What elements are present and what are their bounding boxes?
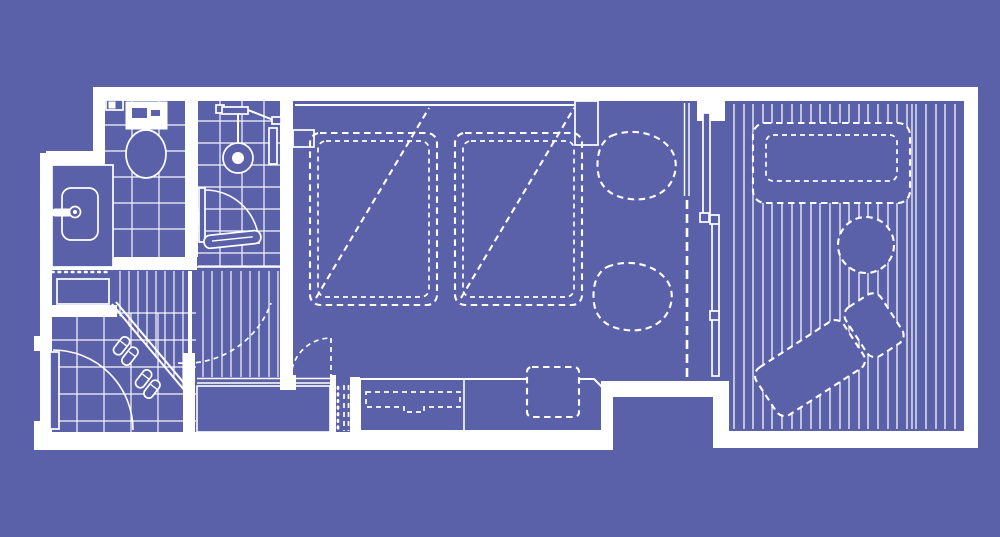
outdoor-bench <box>753 123 910 203</box>
sliding-panel-2 <box>712 220 719 376</box>
panel-handle <box>700 213 709 222</box>
stool-dashed <box>527 367 579 417</box>
side-table-dashed <box>838 217 894 273</box>
door-leaf <box>50 352 59 429</box>
wall-panel <box>269 128 277 164</box>
vanity <box>52 165 113 304</box>
panel-handle <box>710 215 719 224</box>
panel-handle <box>710 311 719 320</box>
bath-cabinet <box>57 279 109 304</box>
floor-plan-canvas <box>0 0 1000 537</box>
sliding-panel-1 <box>703 113 710 221</box>
toilet-bowl <box>126 130 166 178</box>
nightstand-right <box>575 101 598 145</box>
shower-control <box>222 107 248 114</box>
